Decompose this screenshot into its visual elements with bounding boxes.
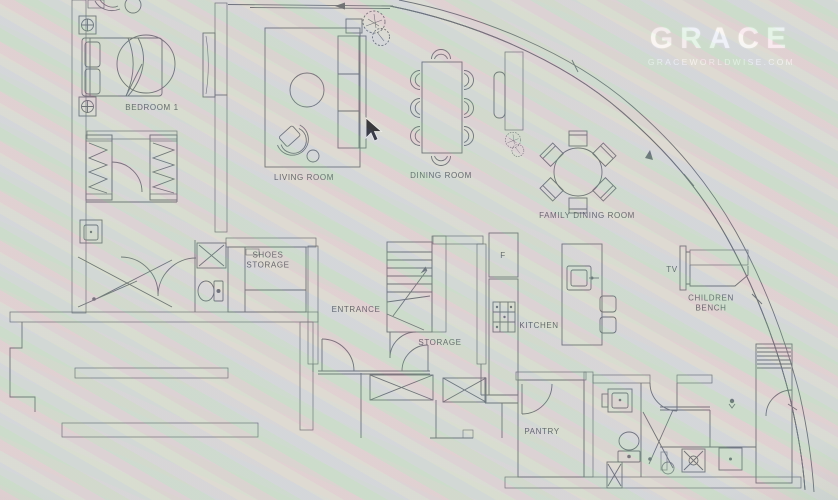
armchair <box>273 121 315 162</box>
room-label-children-bench: CHILDREN BENCH <box>688 293 734 312</box>
kitchen-counter <box>489 279 518 395</box>
room-label-family-dining: FAMILY DINING ROOM <box>539 211 635 221</box>
shoes-label-line1: SHOES <box>246 250 289 260</box>
tv-screen <box>680 246 686 290</box>
room-label-storage: STORAGE <box>418 338 461 348</box>
shower <box>643 410 673 468</box>
room-label-shoes-storage: SHOES STORAGE <box>246 250 289 269</box>
elevator-shaft <box>197 243 226 268</box>
bed <box>82 38 162 96</box>
room-label-kitchen: KITCHEN <box>519 321 558 331</box>
room-label-fridge: F <box>500 251 506 261</box>
toilet <box>618 432 640 462</box>
entrance-doors <box>313 339 430 374</box>
family-dining-set <box>540 131 616 213</box>
shoes-label-line2: STORAGE <box>246 260 289 270</box>
stove <box>493 302 515 332</box>
rug <box>265 28 360 167</box>
children-bench-line1: CHILDREN <box>688 293 734 303</box>
dining-set <box>411 50 524 166</box>
sofa <box>338 36 366 148</box>
tiled-floor <box>756 344 792 483</box>
room-label-dining: DINING ROOM <box>410 171 472 181</box>
floor-plan-photo: BEDROOM 1 LIVING ROOM DINING ROOM FAMILY… <box>0 0 838 500</box>
floor-plan-drawing <box>0 0 838 500</box>
left-bathroom <box>78 220 223 307</box>
room-label-living: LIVING ROOM <box>274 173 334 183</box>
sink <box>602 389 632 412</box>
children-bench-line2: BENCH <box>688 303 734 313</box>
dining-table <box>422 62 462 153</box>
right-utility-room <box>660 344 792 483</box>
room-label-bedroom1: BEDROOM 1 <box>125 103 178 113</box>
brand-site: GRACEWORLDWISE.COM <box>648 57 795 67</box>
walls <box>10 0 801 488</box>
plant <box>505 132 524 156</box>
living-room-furniture <box>265 11 390 167</box>
wardrobes <box>86 135 177 200</box>
room-label-tv: TV <box>666 265 677 275</box>
toilet <box>198 281 223 301</box>
shower-drain <box>682 449 705 472</box>
brand-name: GRACE <box>648 24 795 54</box>
bedroom-furniture <box>79 0 215 116</box>
room-label-entrance: ENTRANCE <box>332 305 381 315</box>
coffee-table <box>290 73 324 107</box>
sink <box>80 220 102 243</box>
entry-planters <box>361 373 518 438</box>
bedroom-top-chair <box>95 0 141 13</box>
bedroom-cabinet <box>203 33 215 97</box>
kitchen-island <box>562 244 602 345</box>
bench <box>494 72 505 118</box>
room-label-pantry: PANTRY <box>524 427 559 437</box>
utility-shaft <box>607 462 622 488</box>
bedroom-rug <box>117 35 175 93</box>
plant <box>363 11 390 46</box>
round-side-table <box>307 150 319 162</box>
watermark-logo: GRACE GRACEWORLDWISE.COM <box>648 24 795 67</box>
sink <box>719 448 742 470</box>
children-bench-outline <box>690 265 748 286</box>
